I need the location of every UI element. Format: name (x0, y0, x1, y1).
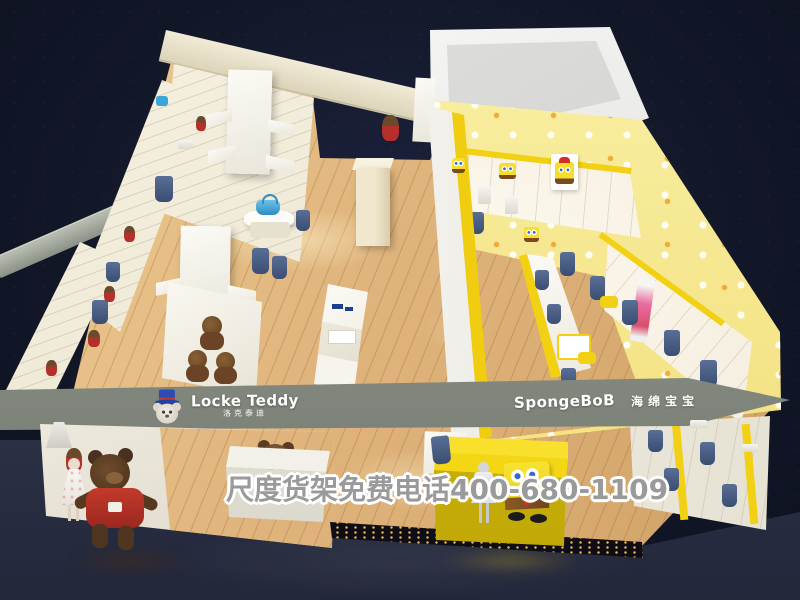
counter-sign-blue (345, 307, 353, 311)
teddy-display-unit (160, 278, 270, 403)
bear-nose (165, 415, 169, 418)
spongebob-partition-poster (452, 158, 465, 173)
bag-display-table (240, 196, 300, 246)
spongebob-name: SpongeBoB (514, 391, 616, 412)
cabinet-body (356, 168, 390, 246)
handbag-handle (262, 194, 278, 204)
teddy-bear-body (214, 367, 237, 384)
table-base (250, 222, 290, 238)
bear-muzzle (106, 472, 123, 484)
denim-item (431, 435, 452, 465)
bear-eye (169, 411, 172, 414)
display-tower-a (206, 66, 296, 216)
tower-wing-shelf (268, 119, 294, 137)
bear-eye (162, 411, 165, 414)
cream-cabinet (352, 158, 398, 250)
watermark-text: 尺度货架免费电话400-680-1109 (226, 468, 668, 508)
bear-leg (118, 526, 134, 550)
teddy-bear-body (186, 365, 209, 382)
spongebob-sign: SpongeBoB 海绵宝宝 (514, 385, 699, 417)
locke-teddy-sign: Locke Teddy 洛克泰迪 (152, 387, 299, 425)
denim-item (535, 270, 549, 290)
locke-teddy-name: Locke Teddy (191, 393, 299, 411)
counter-brand-card (328, 330, 356, 344)
teddy-bear-body (200, 332, 224, 350)
tower-wing-shelf (266, 155, 294, 174)
teddy-on-back-shelf (382, 115, 399, 141)
mannequin-head (68, 458, 80, 470)
counter-sign-blue (332, 304, 343, 309)
large-teddy-bear (82, 448, 158, 552)
cash-counter (310, 278, 380, 398)
denim-item (547, 304, 561, 324)
bear-leg (92, 524, 108, 548)
spongebob-shoe (508, 512, 525, 521)
teddy-bear-top-hat-icon (152, 389, 182, 423)
sweater-label (108, 502, 122, 512)
spongebob-shoe (530, 514, 547, 523)
spongebob-chinese: 海绵宝宝 (631, 392, 699, 410)
mannequin-legs (68, 505, 71, 521)
store-render: Locke Teddy 洛克泰迪 SpongeBoB 海绵宝宝 (0, 0, 800, 600)
locke-teddy-chinese: 洛克泰迪 (223, 409, 267, 418)
table-sign (557, 334, 591, 360)
